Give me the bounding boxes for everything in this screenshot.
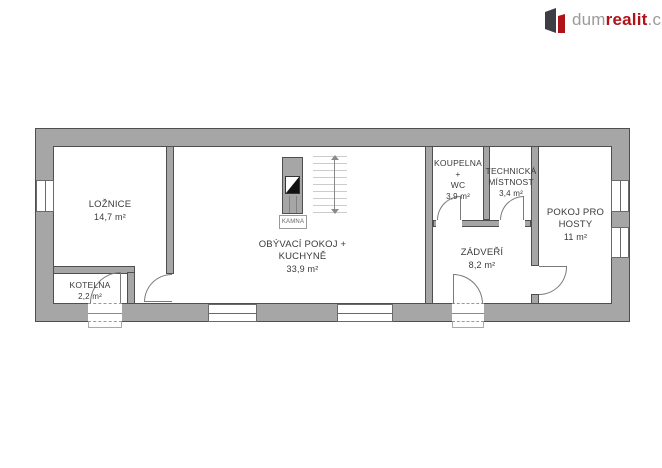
dumrealit-logo-text: dumrealit.cz [572,10,662,30]
window-bottom-living-1 [208,304,257,322]
room-label-pokoj-pro-hosty: POKOJ PRO HOSTY 11 m² [539,205,612,245]
door-leaf-pokoj [539,266,567,267]
room-name: HOSTY [559,219,593,231]
room-name: LOŽNICE [89,199,132,211]
logo-suffix: .cz [648,10,662,29]
room-label-koupelna: KOUPELNA + WC 3,9 m² [433,154,483,206]
window-right-lower [611,227,629,258]
exterior-door-zadveri [452,303,484,322]
room-label-zadveri: ZÁDVEŘÍ 8,2 m² [440,245,524,273]
room-label-technicka: TECHNICKÁ MÍSTNOST 3,4 m² [486,163,536,201]
room-name: KOTELNA [69,280,110,291]
wall-loznice-living [166,146,174,274]
room-name: ZÁDVEŘÍ [461,247,504,259]
wall-kotelna-top [53,266,135,274]
logo-highlight: realit [606,10,648,29]
exterior-door-kotelna [88,303,122,322]
window-right-upper [611,180,629,212]
floorplan-image: dumrealit.cz KAMNA [0,0,662,468]
dumrealit-logo: dumrealit.cz [544,6,662,34]
dumrealit-logo-icon [544,7,567,34]
room-area: 8,2 m² [469,259,496,271]
room-area: 2,2 m² [78,291,102,302]
room-area: 11 m² [564,231,587,243]
wall-zadveri-pokoj-lower [531,294,539,304]
room-area: 3,4 m² [499,188,523,199]
stairs-arrow [334,157,335,213]
door-opening-technicka [499,219,525,228]
room-name: + [455,169,460,180]
room-area: 33,9 m² [287,263,319,275]
entry-step-zadveri [452,322,484,328]
stairs [313,156,347,214]
room-label-loznice: LOŽNICE 14,7 m² [60,196,160,226]
window-left-loznice [36,180,54,212]
logo-prefix: dum [572,10,606,29]
room-name: KOUPELNA [434,158,482,169]
stove-chimney [282,157,303,214]
door-opening-koupelna [436,219,462,228]
stove-symbol [285,176,300,194]
window-bottom-living-2 [337,304,393,322]
flue-line [296,196,297,213]
room-name: KUCHYNĚ [279,251,327,263]
room-name: WC [451,180,466,191]
stove-label: KAMNA [279,215,307,229]
stove-triangle-icon [286,177,299,193]
room-name: OBÝVACÍ POKOJ + [259,239,347,251]
door-leaf-entrance [453,274,454,304]
door-leaf-loznice [144,301,172,302]
room-name: MÍSTNOST [488,177,534,188]
wall-kotelna-right [127,272,135,304]
room-label-kotelna: KOTELNA 2,2 m² [53,280,127,302]
flue-line [289,196,290,213]
wall-living-zadveri [425,146,433,304]
stairs-arrow-head-up [331,155,339,160]
room-name: POKOJ PRO [547,207,604,219]
room-name: TECHNICKÁ [486,166,537,177]
room-area: 14,7 m² [94,211,126,223]
room-area: 3,9 m² [446,191,470,202]
stairs-arrow-head-down [331,209,339,214]
entry-step-kotelna [88,322,122,328]
room-label-obyvaci: OBÝVACÍ POKOJ + KUCHYNĚ 33,9 m² [210,237,395,277]
